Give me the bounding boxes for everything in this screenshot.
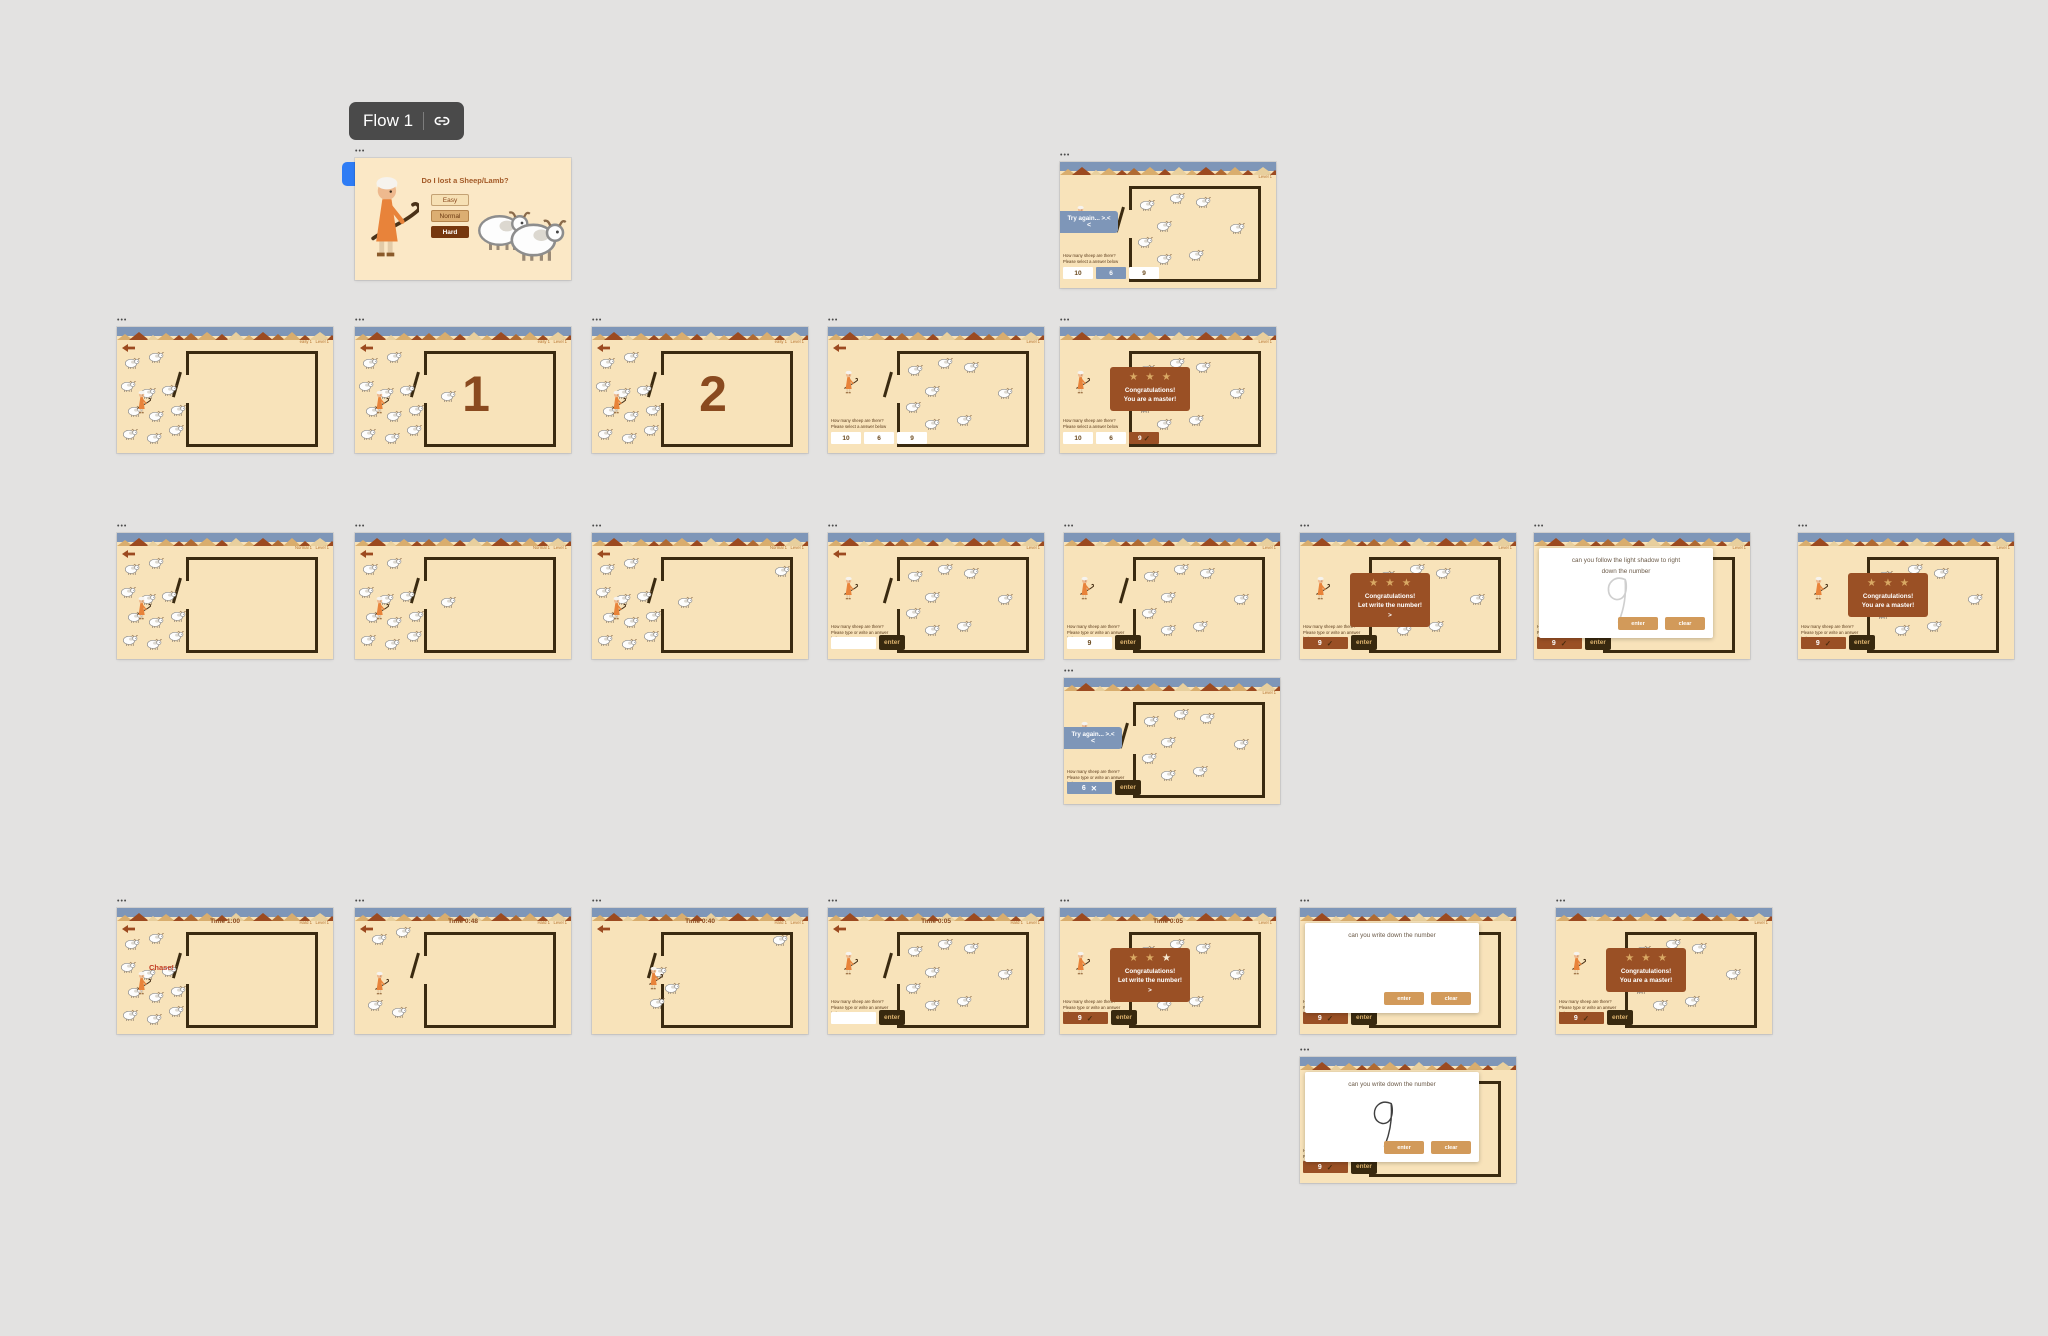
sheep-icon [1155, 253, 1172, 266]
difficulty-hard-button[interactable]: Hard [431, 226, 469, 238]
enter-button[interactable]: enter [1607, 1010, 1633, 1025]
normal-congrats-write-screen[interactable]: Level 1How many sheep are there?Please t… [1300, 533, 1516, 659]
sheep-icon [1228, 968, 1245, 981]
sheep-icon [904, 982, 921, 995]
normal-try-again-screen[interactable]: Level 1How many sheep are there?Please t… [1064, 678, 1280, 804]
shepherd-character [136, 971, 151, 997]
sheep-icon [385, 351, 402, 364]
answer-input[interactable]: 9✓ [1559, 1012, 1604, 1024]
sheep-icon [1191, 765, 1208, 778]
back-arrow-icon[interactable] [122, 925, 135, 933]
answer-options: 1069 [1063, 267, 1159, 279]
answer-option-6[interactable]: 6 [864, 432, 894, 444]
frame-title[interactable]: ••• [1060, 898, 1070, 905]
question-text: How many sheep are there?Please select a… [1063, 418, 1123, 430]
star-icon: ★ [1145, 372, 1154, 383]
answer-input[interactable]: 9✓ [1303, 637, 1348, 649]
back-arrow-icon[interactable] [360, 344, 373, 352]
sheep-icon [123, 357, 140, 370]
sheep-icon [366, 999, 383, 1012]
question-line: Please select a answer below [1063, 259, 1123, 265]
level-indicator: Hard 1 Level 1 [1010, 920, 1040, 925]
sheep-icon [923, 966, 940, 979]
modal-enter-button[interactable]: enter [1384, 1141, 1424, 1154]
sheep-icon [923, 999, 940, 1012]
modal-clear-button[interactable]: clear [1665, 617, 1705, 630]
frame-title[interactable]: ••• [1064, 668, 1074, 675]
sheep-icon [996, 387, 1013, 400]
level-indicator: Level 1 [1258, 339, 1272, 344]
modal-buttons: enterclear [1384, 992, 1471, 1005]
modal-enter-button[interactable]: enter [1618, 617, 1658, 630]
decorative-mountains-bar [117, 327, 333, 336]
pen-gate-opening [422, 956, 428, 984]
pen-gate-door [883, 953, 893, 979]
sheep-icon [147, 557, 164, 570]
pen-gate-door [883, 372, 893, 398]
back-arrow-icon[interactable] [122, 344, 135, 352]
sheep-icon [620, 432, 637, 445]
sheep-icon [996, 593, 1013, 606]
sheep-icon [906, 364, 923, 377]
frame-title[interactable]: ••• [592, 317, 602, 324]
trace-number-screen[interactable]: Level 1How many sheep are there?Please t… [1534, 533, 1750, 659]
sheep-icon [1159, 769, 1176, 782]
write-number-done-screen[interactable]: How many sheep are there?Please type or … [1300, 1057, 1516, 1183]
sheep-icon [596, 634, 613, 647]
sheep-icon [773, 565, 790, 578]
easy-try-again-screen[interactable]: Level 1How many sheep are there?Please s… [1060, 162, 1276, 288]
sheep-icon [635, 590, 652, 603]
sheep-icon [405, 424, 422, 437]
sheep-icon [359, 428, 376, 441]
frame-title[interactable]: ••• [828, 523, 838, 530]
answer-option-9[interactable]: 9 [1129, 267, 1159, 279]
normal-herding-2-screen[interactable]: Normal 1 Level 1 [592, 533, 808, 659]
sheep-icon [1140, 752, 1157, 765]
decorative-mountains-bar [828, 533, 1044, 542]
sheep-icon [383, 638, 400, 651]
congrats-line: Congratulations! [1609, 967, 1683, 977]
level-indicator: Level 1 [1732, 545, 1746, 550]
shepherd-character [843, 370, 858, 396]
back-button[interactable] [597, 925, 610, 933]
try-again-text: Try again... >.< [1066, 731, 1120, 738]
back-arrow-icon[interactable] [833, 925, 846, 933]
sheep-icon [1159, 624, 1176, 637]
back-arrow-icon[interactable] [360, 550, 373, 558]
frame-title[interactable]: ••• [117, 317, 127, 324]
intro-screen[interactable]: Do I lost a Sheep/Lamb?EasyNormalHard [355, 158, 571, 280]
sheep-icon [160, 384, 177, 397]
answer-option-10[interactable]: 10 [1063, 267, 1093, 279]
sheep-pen-fence [186, 557, 318, 653]
back-button[interactable] [122, 550, 135, 558]
answer-input[interactable]: 9✓ [1063, 1012, 1108, 1024]
sheep-icon [923, 999, 940, 1012]
pen-gate-opening [422, 581, 428, 609]
mountains-decoration [1300, 537, 1516, 546]
option-value: 10 [842, 435, 849, 442]
sheep-icon [923, 624, 940, 637]
level-indicator: Normal 1 Level 1 [295, 545, 329, 550]
modal-enter-button[interactable]: enter [1384, 992, 1424, 1005]
star-icon: ★ [1129, 372, 1138, 383]
hard-herding-3-screen[interactable]: Time 0:40Hard 1 Level 1 [592, 908, 808, 1034]
sheep-icon [923, 385, 940, 398]
writing-modal: can you write down the numberenterclear [1305, 923, 1479, 1013]
congrats-line: Congratulations! [1113, 386, 1187, 396]
back-button[interactable] [833, 925, 846, 933]
frame-title[interactable]: ••• [355, 898, 365, 905]
back-arrow-icon[interactable] [122, 550, 135, 558]
sheep-icon [771, 934, 788, 947]
sheep-icon [357, 586, 374, 599]
pen-gate-opening [895, 581, 901, 609]
sheep-icon [1932, 567, 1949, 580]
enter-button[interactable]: enter [1111, 1010, 1137, 1025]
sheep-icon [1159, 736, 1176, 749]
sheep-icon [1228, 387, 1245, 400]
shepherd-character [136, 390, 151, 416]
decorative-mountains-bar [592, 908, 808, 917]
decorative-mountains-bar [117, 533, 333, 542]
flow-label: Flow 1 [363, 111, 413, 131]
sheep-icon [119, 961, 136, 974]
sheep-icon [145, 1013, 162, 1026]
frame-title[interactable]: ••• [1060, 317, 1070, 324]
correct-check-icon: ✓ [1144, 434, 1150, 443]
hard-herding-empty-screen[interactable]: Time 1:00Hard 1 Level 1Chase! [117, 908, 333, 1034]
sheep-icon [1142, 570, 1159, 583]
sheep-icon [962, 567, 979, 580]
sheep-icon [1468, 593, 1485, 606]
figma-canvas: Flow 1 •••Do I lost a Sheep/Lamb?EasyNor… [0, 0, 2048, 1336]
back-button[interactable] [597, 550, 610, 558]
sheep-icon [1198, 567, 1215, 580]
write-number-blank-screen[interactable]: How many sheep are there?Please type or … [1300, 908, 1516, 1034]
answer-options: 1069 [831, 432, 927, 444]
sheep-icon [439, 390, 456, 403]
sheep-icon [439, 596, 456, 609]
shepherd-character [843, 576, 858, 602]
shepherd-character [1571, 951, 1586, 977]
option-value: 6 [877, 435, 881, 442]
back-button[interactable] [833, 550, 846, 558]
sheep-icon [398, 384, 415, 397]
sheep-icon [936, 357, 953, 370]
answer-input[interactable]: 9 [1067, 637, 1112, 649]
sheep-icon [598, 357, 615, 370]
decorative-mountains-bar [592, 533, 808, 542]
easy-count-1-screen[interactable]: easy 1 Level 11 [355, 327, 571, 453]
answer-input[interactable] [831, 637, 876, 649]
back-arrow-icon[interactable] [833, 344, 846, 352]
sheep-icon [1966, 593, 1983, 606]
congrats-overlay: ★★★Congratulations!You are a master! [1606, 948, 1686, 992]
sheep-icon [119, 961, 136, 974]
back-button[interactable] [360, 925, 373, 933]
mountains-decoration [828, 331, 1044, 340]
frame-title[interactable]: ••• [1300, 1047, 1310, 1054]
sheep-icon [361, 357, 378, 370]
correct-check-icon: ✓ [1327, 639, 1333, 648]
congrats-line: > [1353, 611, 1427, 621]
modal-clear-button[interactable]: clear [1431, 992, 1471, 1005]
sheep-icon [1172, 563, 1189, 576]
normal-question-screen[interactable]: Level 1How many sheep are there?Please t… [828, 533, 1044, 659]
sheep-icon [955, 414, 972, 427]
answer-input[interactable]: 6✕ [1067, 782, 1112, 794]
easy-count-2-screen[interactable]: easy 1 Level 12 [592, 327, 808, 453]
sheep-icon [622, 351, 639, 364]
level-indicator: Level 1 [1026, 339, 1040, 344]
option-value: 9 [1138, 435, 1142, 442]
correct-check-icon: ✓ [1327, 1163, 1333, 1172]
frame-title[interactable]: ••• [1300, 523, 1310, 530]
sheep-icon [1187, 414, 1204, 427]
shepherd-character [843, 951, 858, 977]
decorative-mountains-bar [1300, 533, 1516, 542]
sheep-icon [1198, 567, 1215, 580]
star-icon: ★ [1145, 953, 1154, 964]
normal-answer-screen[interactable]: Level 1How many sheep are there?Please t… [1064, 533, 1280, 659]
normal-herding-1-screen[interactable]: Normal 1 Level 1 [355, 533, 571, 659]
question-text: How many sheep are there?Please select a… [831, 418, 891, 430]
answer-input[interactable] [831, 1012, 876, 1024]
answer-option-6[interactable]: 6 [1096, 267, 1126, 279]
frame-title[interactable]: ••• [1556, 898, 1566, 905]
hard-question-screen[interactable]: Time 0:05Hard 1 Level 1How many sheep ar… [828, 908, 1044, 1034]
sheep-icon [620, 432, 637, 445]
frame-title[interactable]: ••• [117, 898, 127, 905]
try-again-chevron: < [1066, 738, 1120, 745]
frame-title[interactable]: ••• [592, 523, 602, 530]
back-button[interactable] [360, 344, 373, 352]
hard-herding-2-screen[interactable]: Time 0:48Hard 1 Level 1 [355, 908, 571, 1034]
sheep-icon [962, 361, 979, 374]
modal-buttons: enterclear [1384, 1141, 1471, 1154]
sheep-icon [923, 591, 940, 604]
enter-button[interactable]: enter [879, 635, 905, 650]
flow-label-pill[interactable]: Flow 1 [349, 102, 464, 140]
sheep-icon [366, 999, 383, 1012]
back-button[interactable] [833, 344, 846, 352]
shepherd-character [374, 390, 389, 416]
sheep-icon [1232, 593, 1249, 606]
input-value: 6 [1082, 785, 1086, 792]
sheep-icon [923, 385, 940, 398]
back-button[interactable] [122, 344, 135, 352]
stars-row: ★★★ [1113, 372, 1187, 383]
enter-button[interactable]: enter [1351, 635, 1377, 650]
input-value: 9 [1088, 640, 1092, 647]
sheep-icon [359, 428, 376, 441]
frame-title[interactable]: ••• [355, 148, 365, 155]
sheep-icon [1925, 620, 1942, 633]
normal-herding-empty-screen[interactable]: Normal 1 Level 1 [117, 533, 333, 659]
sheep-icon [439, 596, 456, 609]
back-button[interactable] [597, 344, 610, 352]
back-button[interactable] [122, 925, 135, 933]
frame-title[interactable]: ••• [1064, 523, 1074, 530]
congrats-overlay: ★★★Congratulations!Let write the number!… [1110, 948, 1190, 1002]
answer-input[interactable]: 9✓ [1303, 1012, 1348, 1024]
hard-congrats-screen[interactable]: Level 1How many sheep are there?Please t… [1556, 908, 1772, 1034]
sheep-icon [1683, 995, 1700, 1008]
shepherd-character [1813, 576, 1828, 602]
sheep-icon [642, 630, 659, 643]
question-line: Please select a answer below [831, 424, 891, 430]
sheep-icon [955, 620, 972, 633]
input-value: 9 [1816, 640, 1820, 647]
sheep-icon [1155, 220, 1172, 233]
correct-check-icon: ✓ [1825, 639, 1831, 648]
frame-title[interactable]: ••• [828, 898, 838, 905]
difficulty-normal-button[interactable]: Normal [431, 210, 469, 222]
sheep-icon [1232, 738, 1249, 751]
sheep-icon [145, 638, 162, 651]
level-indicator: Level 1 [1754, 920, 1768, 925]
sheep-icon [1155, 253, 1172, 266]
sheep-icon [145, 432, 162, 445]
sheep-icon [1434, 567, 1451, 580]
sheep-icon [1651, 999, 1668, 1012]
level-indicator: Level 1 [1262, 690, 1276, 695]
easy-question-screen[interactable]: Level 1How many sheep are there?Please s… [828, 327, 1044, 453]
sheep-icon [644, 404, 661, 417]
star-icon: ★ [1402, 578, 1411, 589]
shepherd-character [1079, 576, 1094, 602]
sheep-icon [663, 982, 680, 995]
sheep-icon [955, 414, 972, 427]
sheep-icon [962, 942, 979, 955]
frame-title[interactable]: ••• [355, 317, 365, 324]
normal-congrats-screen[interactable]: Level 1How many sheep are there?Please t… [1798, 533, 2014, 659]
sheep-icon [996, 387, 1013, 400]
sheep-icon [1140, 607, 1157, 620]
enter-button[interactable]: enter [1115, 635, 1141, 650]
mountains-decoration [1060, 331, 1276, 340]
enter-button[interactable]: enter [879, 1010, 905, 1025]
sheep-icon [676, 596, 693, 609]
back-arrow-icon[interactable] [597, 550, 610, 558]
sheep-icon [359, 634, 376, 647]
shepherd-character [374, 390, 389, 416]
easy-herding-empty-screen[interactable]: easy 1 Level 1 [117, 327, 333, 453]
sheep-icon [622, 557, 639, 570]
sheep-icon [145, 432, 162, 445]
star-icon: ★ [1883, 578, 1892, 589]
answer-option-10[interactable]: 10 [831, 432, 861, 444]
frame-title[interactable]: ••• [355, 523, 365, 530]
congrats-overlay: ★★★Congratulations!You are a master! [1110, 367, 1190, 411]
decorative-mountains-bar [1064, 533, 1280, 542]
sheep-icon [676, 596, 693, 609]
answer-input[interactable]: 9✓ [1537, 637, 1582, 649]
sheep-icon [923, 418, 940, 431]
back-button[interactable] [360, 550, 373, 558]
sheep-icon [923, 966, 940, 979]
sheep-icon [1172, 708, 1189, 721]
sheep-icon [620, 638, 637, 651]
back-arrow-icon[interactable] [360, 925, 373, 933]
level-indicator: Level 1 [1258, 174, 1272, 179]
link-icon[interactable] [434, 113, 450, 129]
sheep-icon [1925, 620, 1942, 633]
frame-title[interactable]: ••• [1300, 898, 1310, 905]
sheep-icon [923, 418, 940, 431]
difficulty-easy-button[interactable]: Easy [431, 194, 469, 206]
pen-gate-opening [184, 375, 190, 403]
try-again-text: Try again... >.< [1062, 215, 1116, 222]
correct-check-icon: ✓ [1327, 1014, 1333, 1023]
modal-clear-button[interactable]: clear [1431, 1141, 1471, 1154]
star-icon: ★ [1867, 578, 1876, 589]
back-arrow-icon[interactable] [597, 344, 610, 352]
frame-title[interactable]: ••• [1060, 152, 1070, 159]
frame-title[interactable]: ••• [1534, 523, 1544, 530]
sheep-icon [955, 995, 972, 1008]
back-arrow-icon[interactable] [597, 925, 610, 933]
chase-label: Chase! [149, 963, 174, 972]
answer-option-10[interactable]: 10 [1063, 432, 1093, 444]
sheep-icon [1191, 765, 1208, 778]
sheep-icon [1168, 192, 1185, 205]
mountains-decoration [1300, 1061, 1516, 1070]
sheep-icon [1140, 607, 1157, 620]
sheep-icon [1434, 567, 1451, 580]
sheep-icon [962, 361, 979, 374]
level-indicator: Normal 1 Level 1 [533, 545, 567, 550]
answer-option-9[interactable]: 9 [897, 432, 927, 444]
option-value: 6 [1109, 270, 1113, 277]
frame-title[interactable]: ••• [1798, 523, 1808, 530]
sheep-icon [121, 634, 138, 647]
sheep-icon [635, 384, 652, 397]
sheep-icon [167, 630, 184, 643]
sheep-icon [620, 638, 637, 651]
sheep-icon [1194, 942, 1211, 955]
sheep-icon [398, 590, 415, 603]
enter-button[interactable]: enter [1849, 635, 1875, 650]
shepherd-character [843, 951, 858, 977]
back-arrow-icon[interactable] [833, 550, 846, 558]
decorative-mountains-bar [1060, 327, 1276, 336]
answer-option-9[interactable]: 9✓ [1129, 432, 1159, 444]
sheep-icon [398, 590, 415, 603]
sheep-icon [1724, 968, 1741, 981]
enter-button[interactable]: enter [1115, 780, 1141, 795]
shepherd-character-large [367, 174, 419, 266]
decorative-mountains-bar [1064, 678, 1280, 687]
frame-title[interactable]: ••• [828, 317, 838, 324]
easy-congrats-screen[interactable]: Level 1How many sheep are there?Please s… [1060, 327, 1276, 453]
sheep-icon [955, 620, 972, 633]
hard-congrats-write-screen[interactable]: Time 0:05Level 1How many sheep are there… [1060, 908, 1276, 1034]
answer-option-6[interactable]: 6 [1096, 432, 1126, 444]
answer-input[interactable]: 9✓ [1801, 637, 1846, 649]
sheep-icon [663, 982, 680, 995]
shepherd-character [374, 596, 389, 622]
frame-title[interactable]: ••• [117, 523, 127, 530]
mountains-decoration [1798, 537, 2014, 546]
decorative-mountains-bar [828, 327, 1044, 336]
answer-input[interactable]: 9✓ [1303, 1161, 1348, 1173]
frame-title[interactable]: ••• [592, 898, 602, 905]
sheep-icon [119, 380, 136, 393]
sheep-icon [1893, 624, 1910, 637]
